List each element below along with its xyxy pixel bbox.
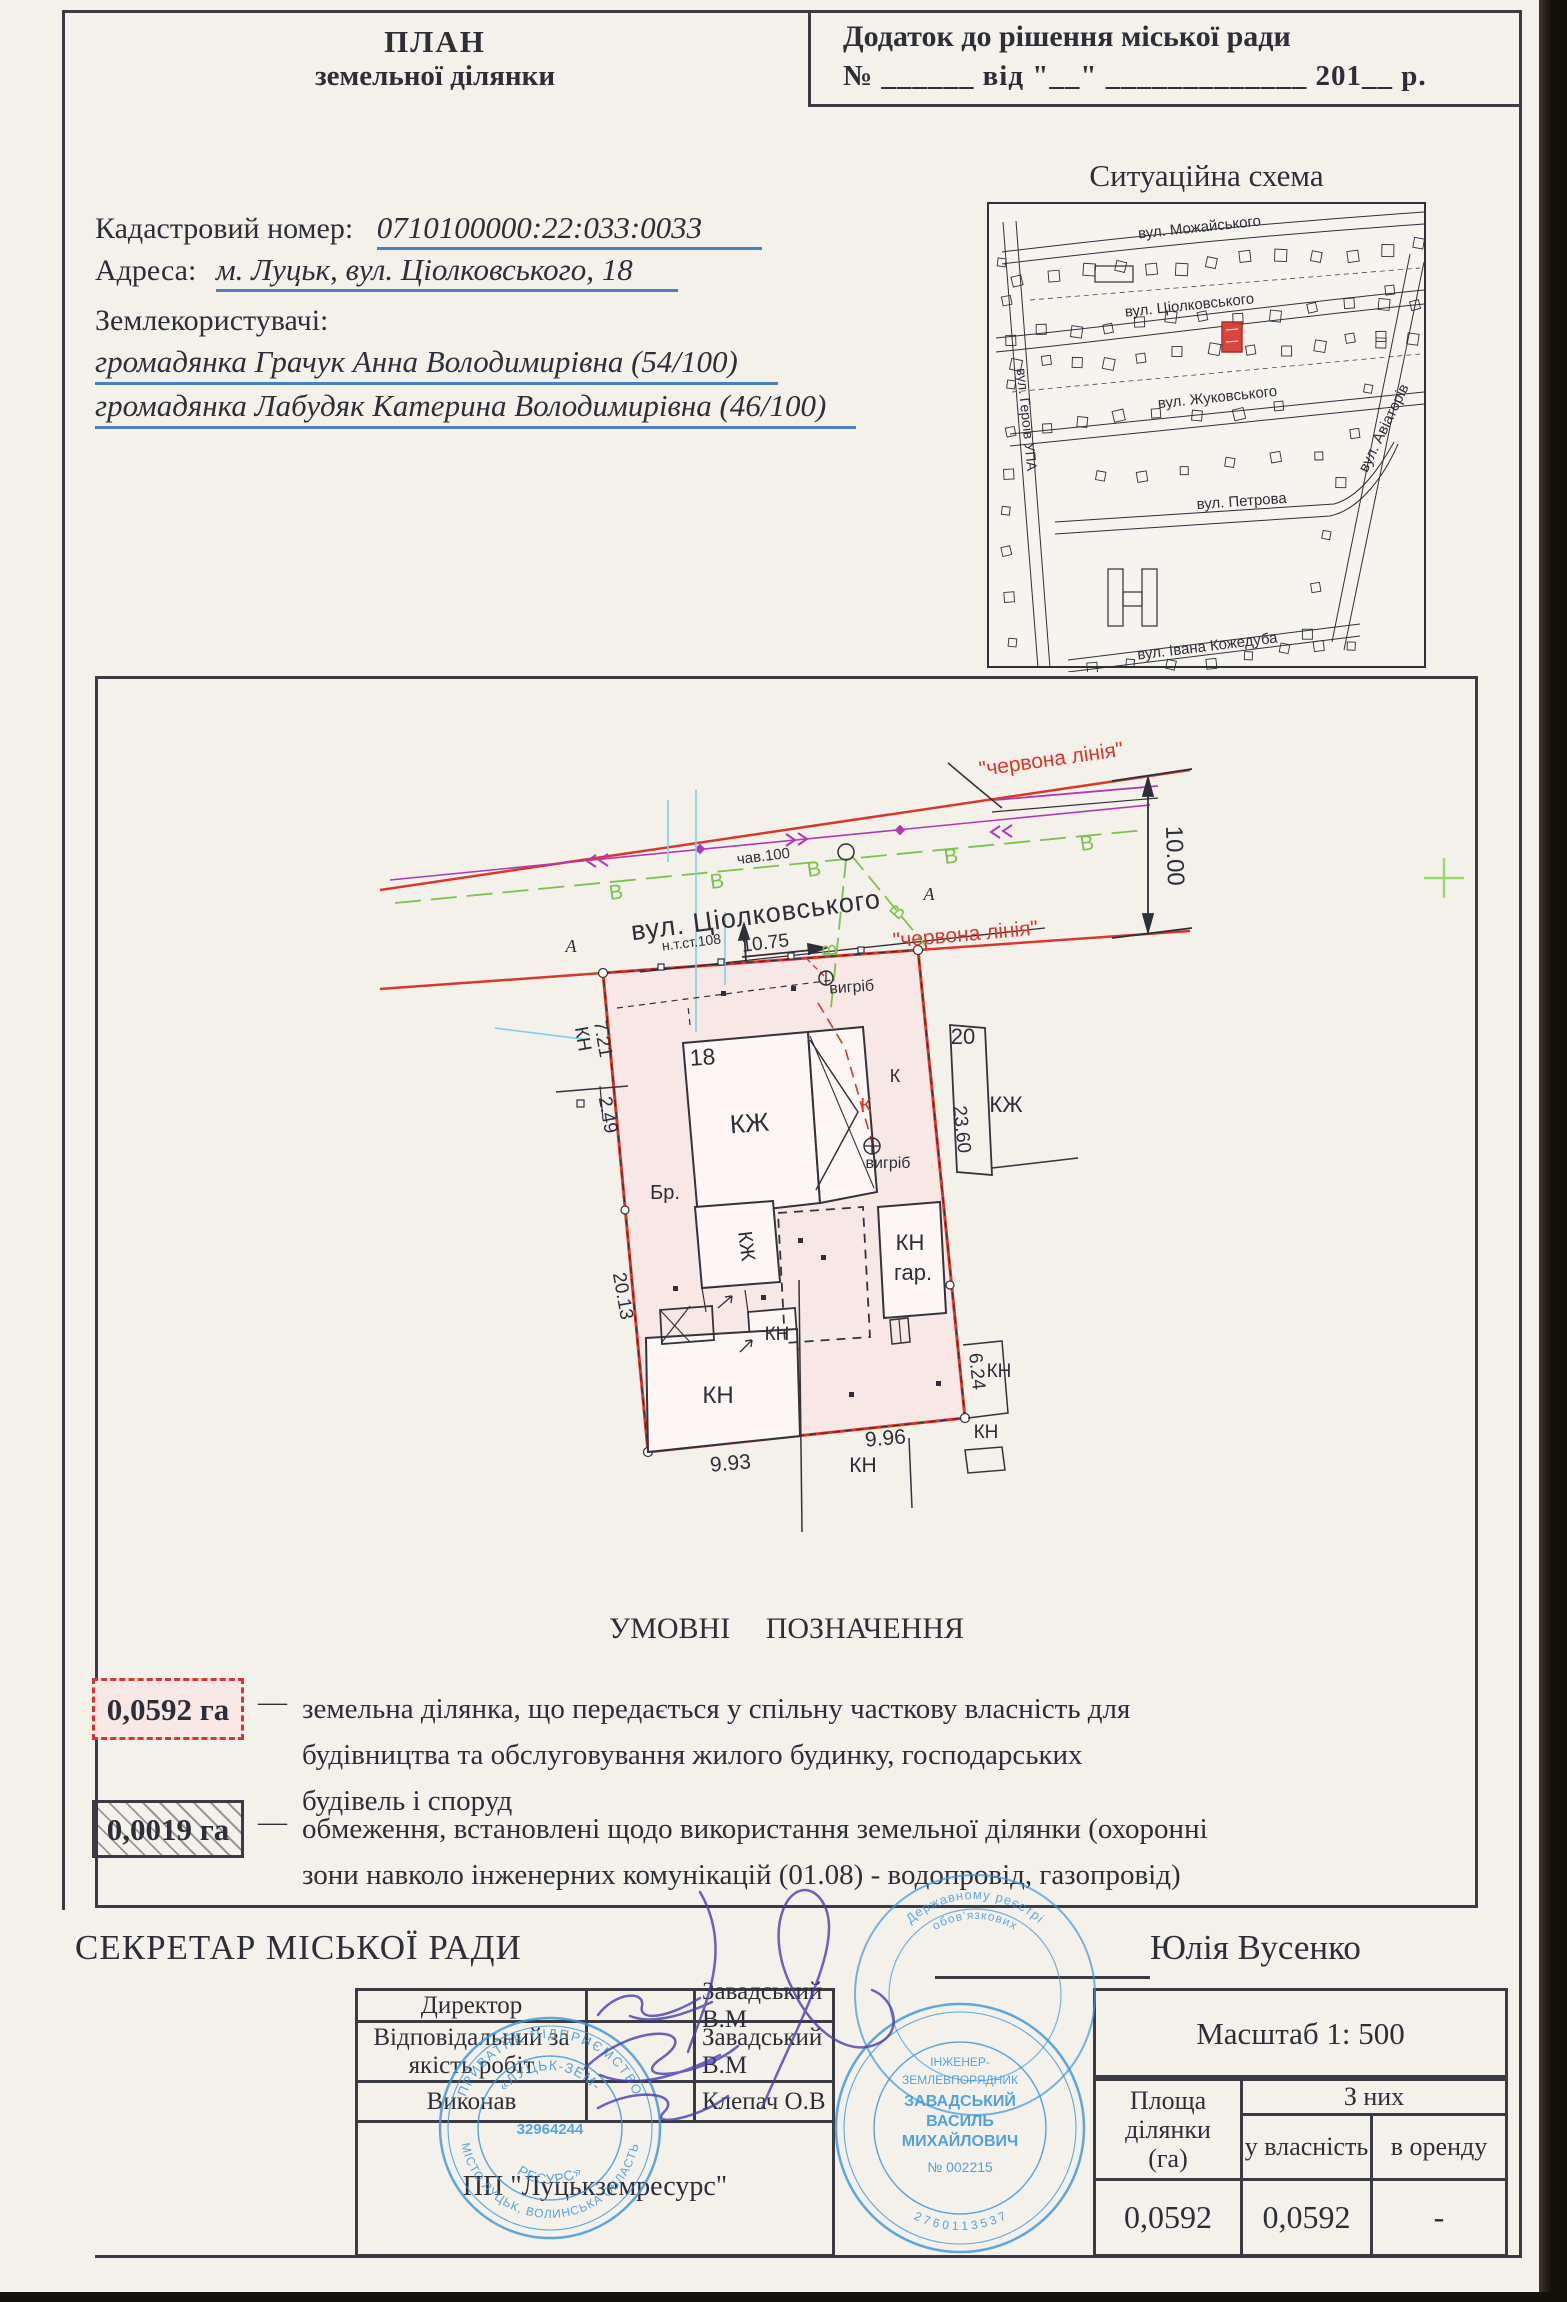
stamp-line: МИХАЙЛОВИЧ xyxy=(902,2131,1019,2150)
area-rent-header: в оренду xyxy=(1373,2116,1505,2181)
appendix-box: Додаток до рішення міської ради № ______… xyxy=(808,10,1519,107)
map-target-plot xyxy=(1222,322,1242,352)
water-mark: В xyxy=(820,944,841,957)
landuser-2: громадянка Лабудяк Катерина Володимирівн… xyxy=(95,388,856,429)
legend-text-parcel: земельна ділянка, що передається у спіль… xyxy=(302,1686,1130,1824)
cadastral-label: Кадастровий номер: xyxy=(95,212,353,245)
sewer-mark: К xyxy=(890,1066,901,1086)
pipe-label: чав.100 xyxy=(736,845,791,868)
stamp-arc2: обов'язкових xyxy=(930,1908,1021,1933)
svg-text:«ЛУЦЬК-ЗЕМ-: «ЛУЦЬК-ЗЕМ- xyxy=(495,2057,605,2094)
legend-title: УМОВНІ ПОЗНАЧЕННЯ xyxy=(95,1612,1478,1646)
doc-subtitle: земельної ділянки xyxy=(62,60,808,93)
building-label: КН xyxy=(974,1422,999,1443)
legend-swatch-parcel: 0,0592 га xyxy=(92,1678,244,1740)
cesspool-label: вигріб xyxy=(829,977,875,997)
building-label: КН xyxy=(765,1324,790,1345)
point-a: А xyxy=(565,936,578,956)
landusers-label: Землекористувачі: xyxy=(95,304,328,338)
address-value: м. Луцьк, вул. Ціолковського, 18 xyxy=(216,252,678,292)
company-stamp-text: ПРИВАТНЕ ПІДПРИЄМСТВО МІСТО ЛУЦЬК, ВОЛИН… xyxy=(454,2026,645,2221)
document-page: ПЛАН земельної ділянки Додаток до рішенн… xyxy=(0,0,1567,2302)
engineer-stamp-text: ІНЖЕНЕР- ЗЕМЛЕВПОРЯДНИК ЗАВАДСЬКИЙ ВАСИЛ… xyxy=(902,2055,1019,2233)
stamp-line: ІНЖЕНЕР- xyxy=(930,2055,990,2069)
doc-title: ПЛАН xyxy=(62,24,808,60)
address-label: Адреса: xyxy=(95,254,196,287)
stamp-inner-bottom: РЕСУРС» xyxy=(515,2162,585,2187)
building-label: КН xyxy=(987,1361,1012,1382)
title-block: ПЛАН земельної ділянки xyxy=(62,24,808,93)
dim: 9.96 xyxy=(864,1425,907,1451)
stamp-line: ВАСИЛЬ xyxy=(926,2113,994,2130)
building-label: КЖ xyxy=(733,1230,759,1263)
dim: 9.93 xyxy=(709,1450,752,1476)
svg-text:РЕСУРС»: РЕСУРС» xyxy=(515,2162,585,2187)
page-frame-right xyxy=(1519,10,1522,2258)
svg-text:обов'язкових: обов'язкових xyxy=(930,1908,1021,1933)
water-mark: В xyxy=(709,869,726,894)
house-number: 20 xyxy=(951,1024,975,1049)
dim-10-00: 10.00 xyxy=(1160,825,1189,886)
water-mark: В xyxy=(886,901,910,924)
building-label: КН xyxy=(896,1230,925,1255)
handwritten-signatures xyxy=(585,1890,894,2120)
legend-dash: — xyxy=(258,1806,287,1839)
building-label: КЖ xyxy=(729,1107,770,1140)
address-line: Адреса: м. Луцьк, вул. Ціолковського, 18 xyxy=(95,252,678,288)
scheme-title: Ситуаційна схема xyxy=(985,158,1428,194)
water-mark: В xyxy=(608,880,625,905)
cadastral-value: 0710100000:22:033:0033 xyxy=(377,210,762,250)
svg-text:2 7 6 0 1 1 3 5 3 7: 2 7 6 0 1 1 3 5 3 7 xyxy=(912,2209,1008,2233)
garage-label: гар. xyxy=(894,1260,932,1285)
dim: 6.24 xyxy=(964,1352,989,1391)
scan-edge-right xyxy=(1539,0,1567,2302)
building-label: КН xyxy=(702,1382,733,1409)
water-mark: В xyxy=(806,857,823,882)
building-label: КН xyxy=(570,1025,595,1053)
dim: 23.60 xyxy=(949,1105,975,1154)
red-line-label-top: "червона лінія" xyxy=(977,738,1124,781)
legend-dash: — xyxy=(258,1686,287,1719)
cesspool-label: вигріб xyxy=(866,1155,911,1172)
stamp-number: № 002215 xyxy=(927,2159,993,2175)
appendix-line1: Додаток до рішення міської ради xyxy=(843,20,1291,54)
area-group-header: З них xyxy=(1243,2081,1505,2116)
point-a: А xyxy=(923,884,936,904)
area-value-rent: - xyxy=(1373,2181,1505,2254)
stamps-overlay: ПРИВАТНЕ ПІДПРИЄМСТВО МІСТО ЛУЦЬК, ВОЛИН… xyxy=(330,1860,1280,2302)
legend-line: обмеження, встановлені щодо використання… xyxy=(302,1806,1208,1852)
house-number: 18 xyxy=(689,1043,716,1071)
legend-line: будівництва та обслуговування жилого буд… xyxy=(302,1732,1130,1778)
grid-cross-icon xyxy=(1424,858,1464,898)
stamp-line: ЗЕМЛЕВПОРЯДНИК xyxy=(902,2073,1018,2087)
pavement-label: Бр. xyxy=(650,1182,680,1204)
appendix-line2: № ______ від "__" _____________ 201__ р. xyxy=(843,60,1427,93)
stamp-line: ЗАВАДСЬКИЙ xyxy=(904,2091,1016,2110)
stamp-code: 32964244 xyxy=(517,2121,584,2138)
stamp-digits: 2 7 6 0 1 1 3 5 3 7 xyxy=(912,2209,1008,2233)
legend-line: земельна ділянка, що передається у спіль… xyxy=(302,1686,1130,1732)
page-frame-left xyxy=(62,10,65,1910)
cadastral-line: Кадастровий номер: 0710100000:22:033:003… xyxy=(95,210,762,246)
stamp-inner-top: «ЛУЦЬК-ЗЕМ- xyxy=(495,2057,605,2094)
building-label: КН xyxy=(849,1454,876,1477)
landuser-1: громадянка Грачук Анна Володимирівна (54… xyxy=(95,344,778,385)
gas-line xyxy=(390,805,1150,880)
building-label: КЖ xyxy=(989,1092,1023,1117)
situational-map: вул. Можайськоговул. Ціолковськоговул. Ж… xyxy=(985,200,1428,672)
sewer-mark: К xyxy=(860,1095,872,1117)
legend-swatch-restriction: 0,0019 га xyxy=(92,1800,244,1858)
